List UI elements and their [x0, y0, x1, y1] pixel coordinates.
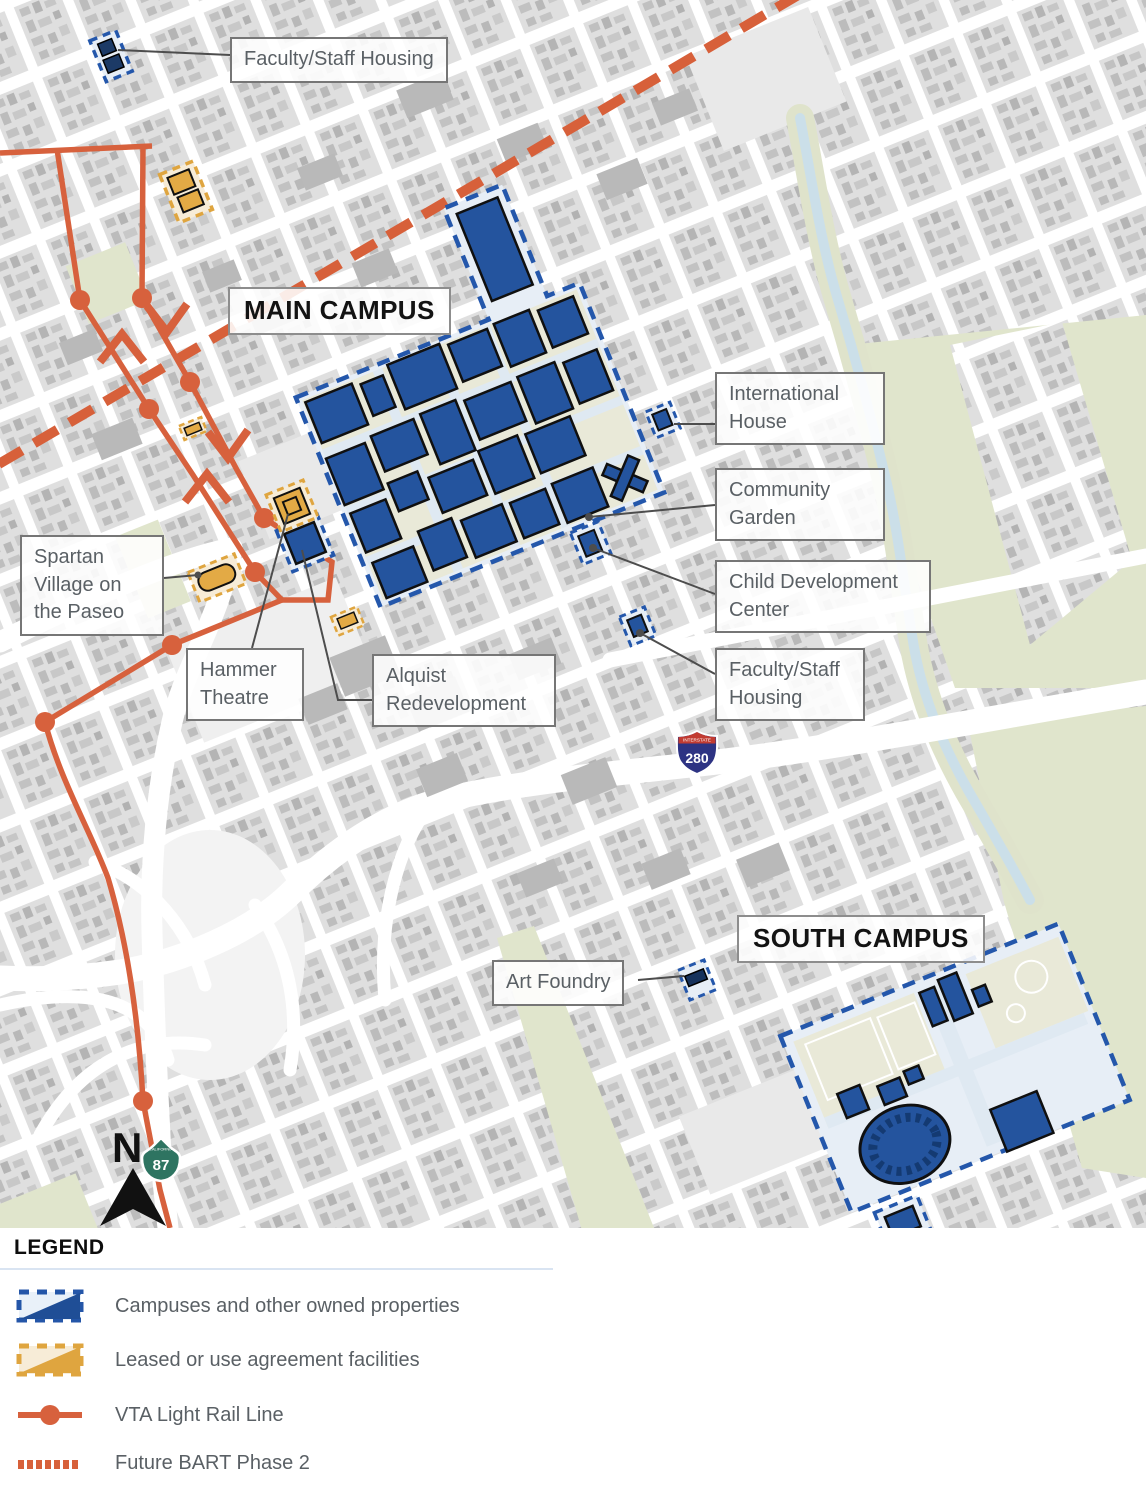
legend-item-owned: Campuses and other owned properties: [16, 1288, 460, 1324]
label-child-development-center: Child Development Center: [715, 560, 931, 633]
svg-text:N: N: [112, 1124, 142, 1171]
label-faculty-staff-housing-north: Faculty/Staff Housing: [230, 37, 448, 83]
svg-text:280: 280: [685, 750, 709, 766]
svg-text:CALIFORNIA: CALIFORNIA: [149, 1147, 173, 1152]
label-faculty-staff-housing-south: Faculty/Staff Housing: [715, 648, 865, 721]
legend-item-bart: Future BART Phase 2: [16, 1452, 310, 1475]
bart-line-icon: [16, 1456, 84, 1472]
vta-line-icon: [16, 1402, 84, 1428]
legend-label-leased: Leased or use agreement facilities: [115, 1349, 420, 1372]
label-main-campus: MAIN CAMPUS: [228, 287, 451, 335]
label-spartan-village: Spartan Village on the Paseo: [20, 535, 164, 636]
legend-label-bart: Future BART Phase 2: [115, 1452, 310, 1475]
svg-text:87: 87: [153, 1157, 170, 1174]
label-hammer-theatre: Hammer Theatre: [186, 648, 304, 721]
label-alquist-redevelopment: Alquist Redevelopment: [372, 654, 556, 727]
svg-text:INTERSTATE: INTERSTATE: [683, 738, 711, 743]
legend-divider: [0, 1268, 553, 1270]
legend-heading: LEGEND: [14, 1236, 105, 1260]
legend-label-vta: VTA Light Rail Line: [115, 1404, 284, 1427]
label-art-foundry: Art Foundry: [492, 960, 624, 1006]
label-international-house: International House: [715, 372, 885, 445]
legend-item-vta: VTA Light Rail Line: [16, 1402, 284, 1428]
label-community-garden: Community Garden: [715, 468, 885, 541]
map-canvas: INTERSTATE 280 CALIFORNIA 87 N: [0, 0, 1146, 1228]
leased-swatch-icon: [16, 1342, 84, 1378]
owned-swatch-icon: [16, 1288, 84, 1324]
legend-item-leased: Leased or use agreement facilities: [16, 1342, 420, 1378]
campus-map-page: INTERSTATE 280 CALIFORNIA 87 N Faculty/S…: [0, 0, 1146, 1506]
label-south-campus: SOUTH CAMPUS: [737, 915, 985, 963]
legend-label-owned: Campuses and other owned properties: [115, 1295, 460, 1318]
